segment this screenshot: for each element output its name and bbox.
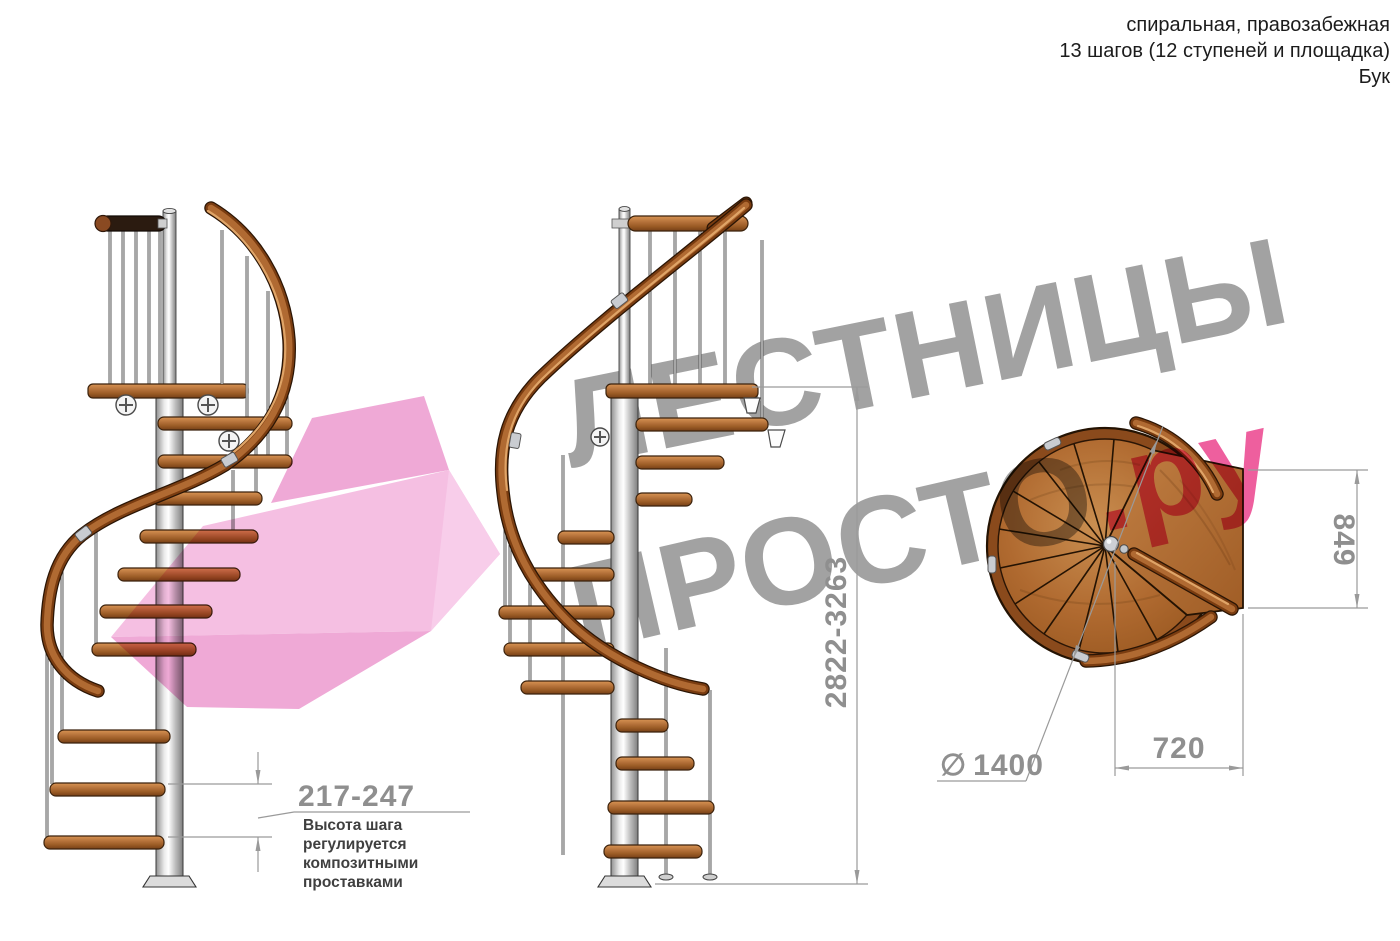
title-line-type: спиральная, правозабежная	[1059, 12, 1390, 38]
note-line: регулируется	[303, 836, 406, 853]
drawing-canvas: ЛЕСТНИЦЫ ПРОСТО.ру	[0, 0, 1400, 941]
note-line: Высота шага	[303, 817, 403, 834]
dimension-annotations: 2822-3263 217-247 Высота шага регулирует…	[0, 0, 1400, 941]
dim-platform-width: 720	[1115, 562, 1243, 776]
dim-step-height: 217-247 Высота шага регулируется компози…	[168, 752, 470, 891]
dim-label-height: 2822-3263	[820, 556, 853, 708]
diameter-value: 1400	[973, 749, 1044, 782]
dim-platform-depth: 849	[1248, 470, 1368, 608]
dim-label-diameter: ∅1400	[940, 749, 1044, 782]
dim-overall-height: 2822-3263	[655, 387, 868, 884]
title-line-steps: 13 шагов (12 ступеней и площадка)	[1059, 38, 1390, 64]
title-line-material: Бук	[1059, 64, 1390, 90]
dim-label-step-height: 217-247	[298, 780, 415, 813]
step-height-note: Высота шага регулируется композитными пр…	[303, 817, 418, 891]
diameter-symbol-icon: ∅	[940, 749, 967, 782]
dim-label-depth: 849	[1327, 513, 1360, 566]
dim-diameter: ∅1400	[937, 426, 1163, 782]
note-line: композитными	[303, 855, 418, 872]
dim-label-width: 720	[1152, 732, 1205, 765]
title-block: спиральная, правозабежная 13 шагов (12 с…	[1059, 12, 1390, 90]
note-line: проставками	[303, 874, 403, 891]
